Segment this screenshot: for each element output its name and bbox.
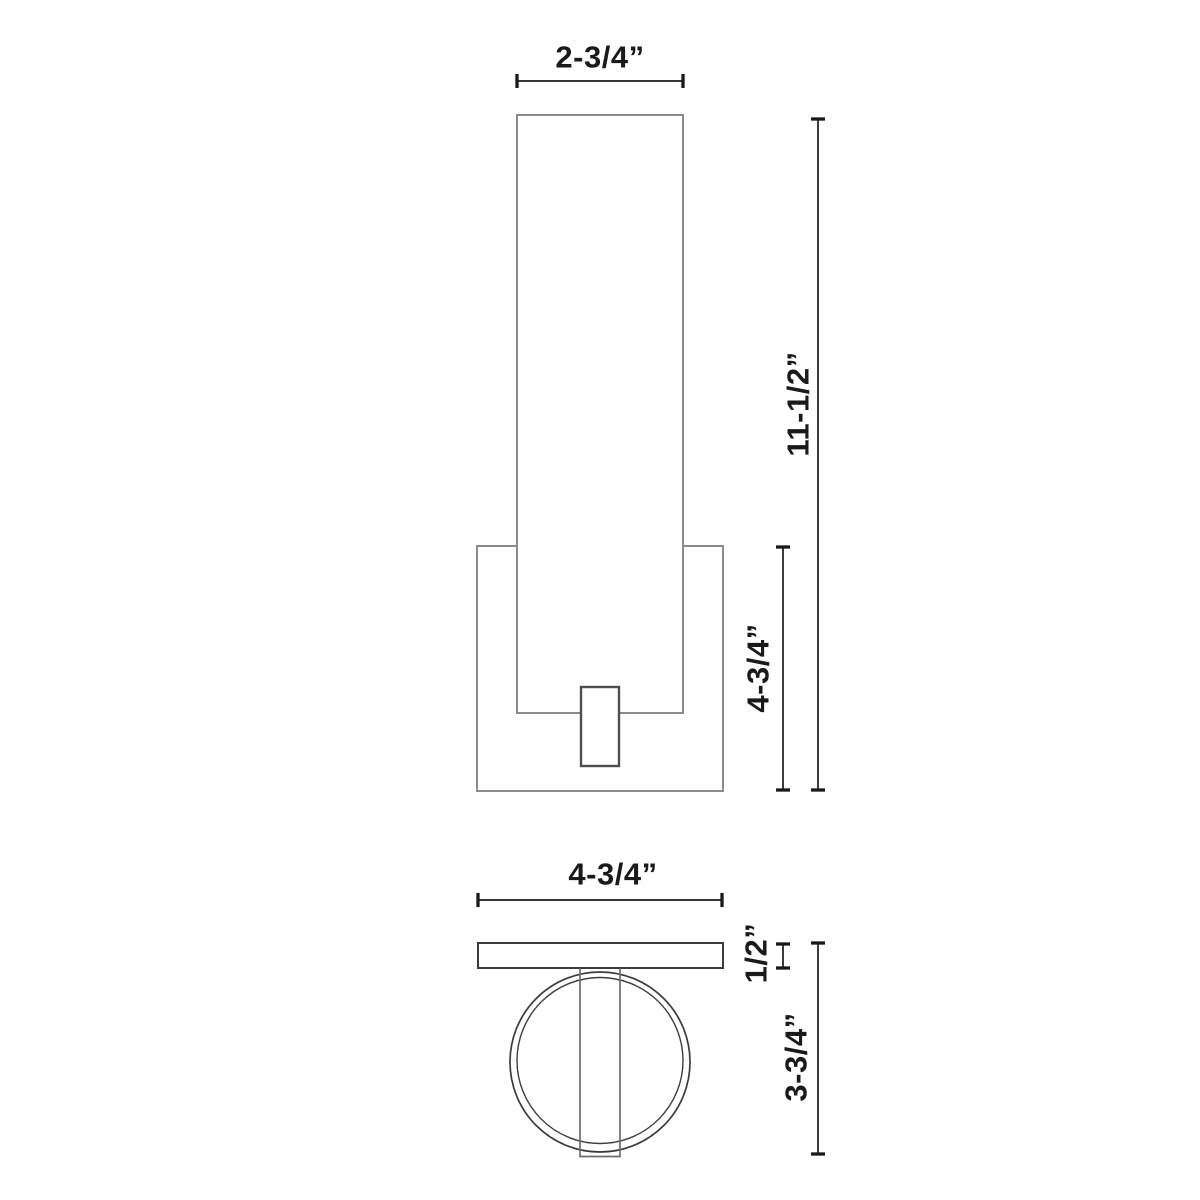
dim-overall-depth: 3-3/4” — [779, 943, 826, 1154]
dim-shade-width: 2-3/4” — [517, 40, 683, 89]
dim-label-overall-depth: 3-3/4” — [779, 1012, 814, 1101]
dim-backplate-height: 4-3/4” — [741, 547, 791, 790]
cylinder-outer-circle — [510, 972, 690, 1152]
dim-label-plate-depth: 1/2” — [739, 923, 774, 984]
mounting-plate-top-outline — [478, 943, 723, 968]
dim-label-shade-width: 2-3/4” — [555, 40, 644, 75]
dimension-drawing-canvas: 2-3/4” 11-1/2” 4-3/4” 4-3/4” — [0, 0, 1200, 1200]
cylinder-inner-circle — [517, 978, 683, 1144]
dim-plate-depth: 1/2” — [739, 923, 791, 984]
drawing-page: 2-3/4” 11-1/2” 4-3/4” 4-3/4” — [0, 0, 1200, 1200]
shade-outline — [517, 115, 683, 713]
dim-label-plate-width: 4-3/4” — [568, 857, 657, 892]
stem-top-profile — [580, 969, 620, 1157]
dim-overall-height: 11-1/2” — [781, 119, 826, 790]
dim-label-overall-height: 11-1/2” — [781, 351, 816, 456]
stem-outline — [581, 687, 619, 766]
dim-label-backplate-height: 4-3/4” — [741, 623, 776, 712]
front-view — [477, 115, 723, 791]
top-view — [478, 943, 723, 1157]
dim-plate-width: 4-3/4” — [478, 857, 722, 908]
